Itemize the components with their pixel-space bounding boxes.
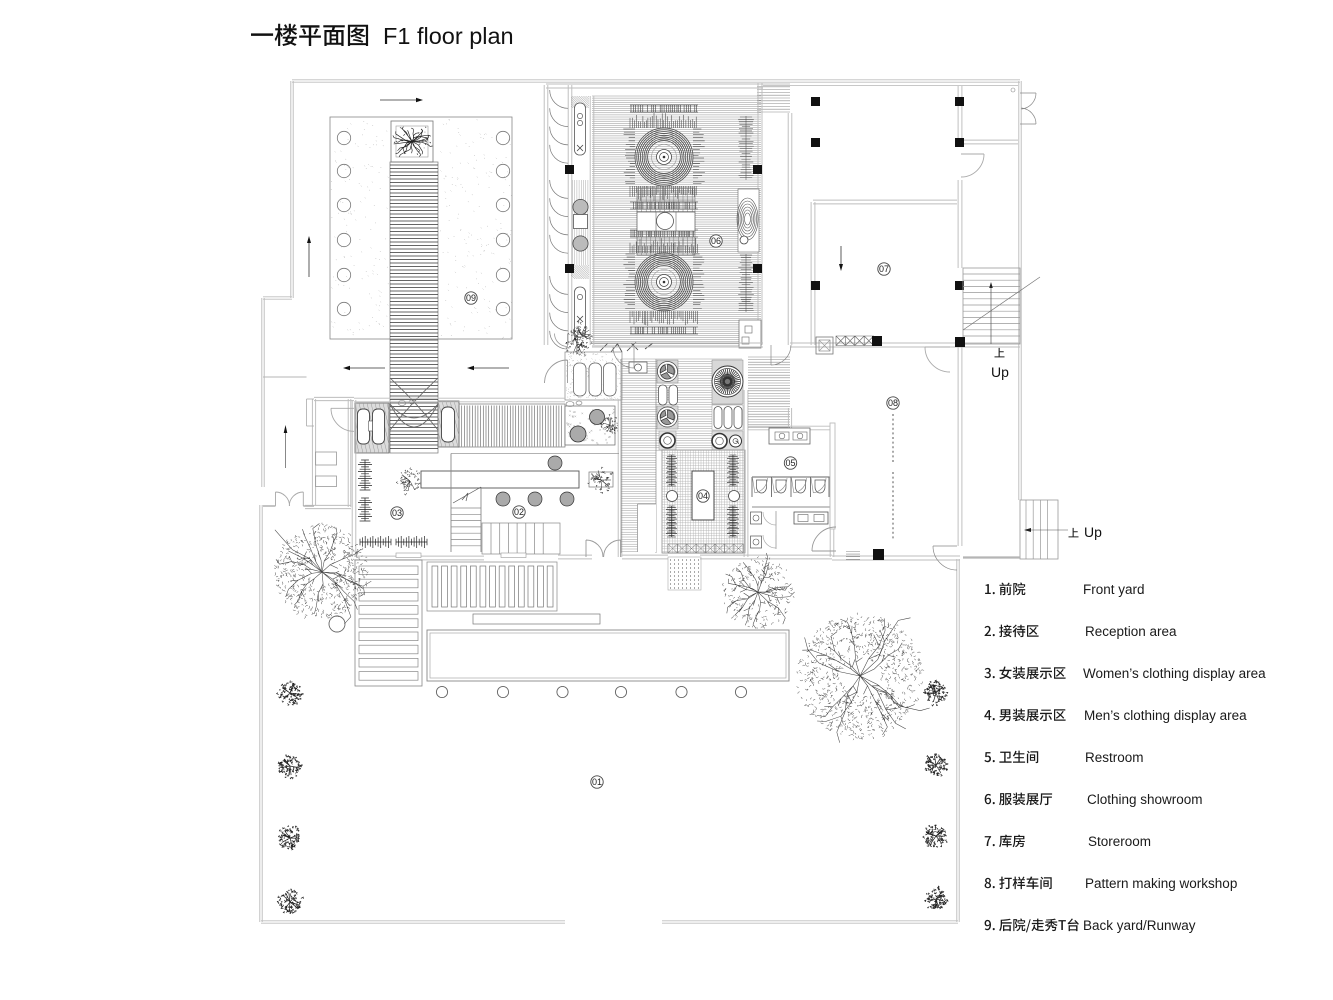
svg-text:Storeroom: Storeroom [1088,834,1151,849]
svg-text:Reception area: Reception area [1085,624,1177,639]
svg-text:Up: Up [1084,524,1102,540]
svg-text:Restroom: Restroom [1085,750,1144,765]
svg-text:07: 07 [879,264,889,274]
svg-text:Up: Up [991,364,1009,380]
svg-text:06: 06 [711,236,721,246]
svg-text:03: 03 [392,508,402,518]
svg-text:Men’s clothing display area: Men’s clothing display area [1084,708,1247,723]
svg-text:Pattern making workshop: Pattern making workshop [1085,876,1237,891]
svg-text:F1 floor plan: F1 floor plan [383,23,514,49]
svg-text:04: 04 [698,491,708,501]
svg-text:Clothing showroom: Clothing showroom [1087,792,1203,807]
svg-text:Front yard: Front yard [1083,582,1145,597]
svg-text:02: 02 [514,507,524,517]
svg-text:09: 09 [466,293,476,303]
svg-text:05: 05 [785,458,795,468]
svg-text:01: 01 [592,777,602,787]
svg-text:08: 08 [888,398,898,408]
svg-text:Back yard/Runway: Back yard/Runway [1083,918,1196,933]
svg-text:Women’s clothing display area: Women’s clothing display area [1083,666,1266,681]
